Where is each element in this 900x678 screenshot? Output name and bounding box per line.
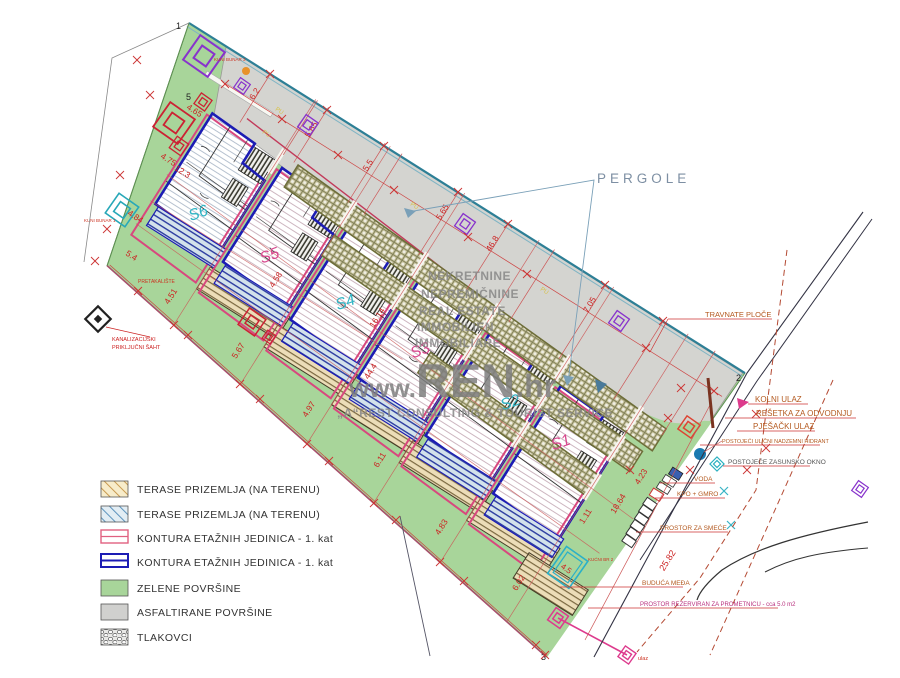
svg-text:PROSTOR REZERVIRAN ZA PROMETNI: PROSTOR REZERVIRAN ZA PROMETNICU - cca 5…	[640, 602, 796, 608]
svg-text:NEPREMIČNINE: NEPREMIČNINE	[421, 286, 519, 301]
svg-text:5: 5	[186, 92, 191, 102]
svg-text:PRETAKALIŠTE: PRETAKALIŠTE	[138, 278, 176, 285]
svg-text:PJEŠAČKI ULAZ: PJEŠAČKI ULAZ	[753, 422, 814, 431]
svg-text:TLAKOVCI: TLAKOVCI	[137, 632, 192, 644]
svg-text:„A“REST CONSULTING & TOURIST S: „A“REST CONSULTING & TOURIST SERVICE	[337, 406, 613, 420]
svg-text:PROSTOR ZA SMEĆE: PROSTOR ZA SMEĆE	[660, 523, 727, 532]
svg-text:PERGOLE: PERGOLE	[597, 171, 690, 186]
svg-text:TRAVNATE PLOČE: TRAVNATE PLOČE	[705, 310, 771, 319]
svg-text:VODA: VODA	[694, 476, 713, 483]
svg-text:KONTURA ETAŽNIH JEDINICA - 1.: KONTURA ETAŽNIH JEDINICA - 1. kat	[137, 532, 333, 545]
svg-text:IMMOBILIARE: IMMOBILIARE	[415, 336, 501, 350]
svg-text:1: 1	[176, 21, 181, 31]
svg-text:KUNI BUNAR 1: KUNI BUNAR 1	[84, 218, 116, 223]
svg-text:2: 2	[736, 373, 741, 383]
svg-text:BUDUĆA MEĐA: BUDUĆA MEĐA	[642, 578, 690, 587]
svg-text:TERASE PRIZEMLJA (NA TERENU): TERASE PRIZEMLJA (NA TERENU)	[137, 509, 320, 521]
svg-text:REŠETKA ZA ODVODNJU: REŠETKA ZA ODVODNJU	[756, 409, 852, 418]
svg-text:REAL ESTATE: REAL ESTATE	[419, 304, 506, 318]
svg-text:ASFALTIRANE POVRŠINE: ASFALTIRANE POVRŠINE	[137, 606, 273, 619]
svg-text:KPO + GMRO: KPO + GMRO	[677, 491, 718, 498]
svg-text:ZELENE POVRŠINE: ZELENE POVRŠINE	[137, 582, 241, 595]
svg-text:POSTOJEĆI ULIČNI NADZEMNI HIDR: POSTOJEĆI ULIČNI NADZEMNI HIDRANT	[722, 438, 829, 445]
svg-text:ulaz: ulaz	[638, 656, 648, 662]
svg-text:KANALIZACIJSKI: KANALIZACIJSKI	[112, 337, 156, 343]
svg-text:IMMOBILIEN: IMMOBILIEN	[417, 320, 494, 334]
svg-text:KUNI BUNAR 3: KUNI BUNAR 3	[214, 57, 246, 62]
svg-text:KOLNI ULAZ: KOLNI ULAZ	[755, 395, 802, 404]
svg-text:KONTURA ETAŽNIH JEDINICA - 1.: KONTURA ETAŽNIH JEDINICA - 1. kat	[137, 556, 333, 569]
svg-text:POSTOJEĆE ZASUNSKO OKNO: POSTOJEĆE ZASUNSKO OKNO	[728, 457, 826, 466]
svg-text:TERASE PRIZEMLJA (NA TERENU): TERASE PRIZEMLJA (NA TERENU)	[137, 484, 320, 496]
svg-text:NEKRETNINE: NEKRETNINE	[428, 269, 511, 283]
svg-text:KUĆNI BR 2: KUĆNI BR 2	[588, 556, 614, 562]
svg-text:PRIKLJUČNI ŠAHT: PRIKLJUČNI ŠAHT	[112, 344, 161, 351]
